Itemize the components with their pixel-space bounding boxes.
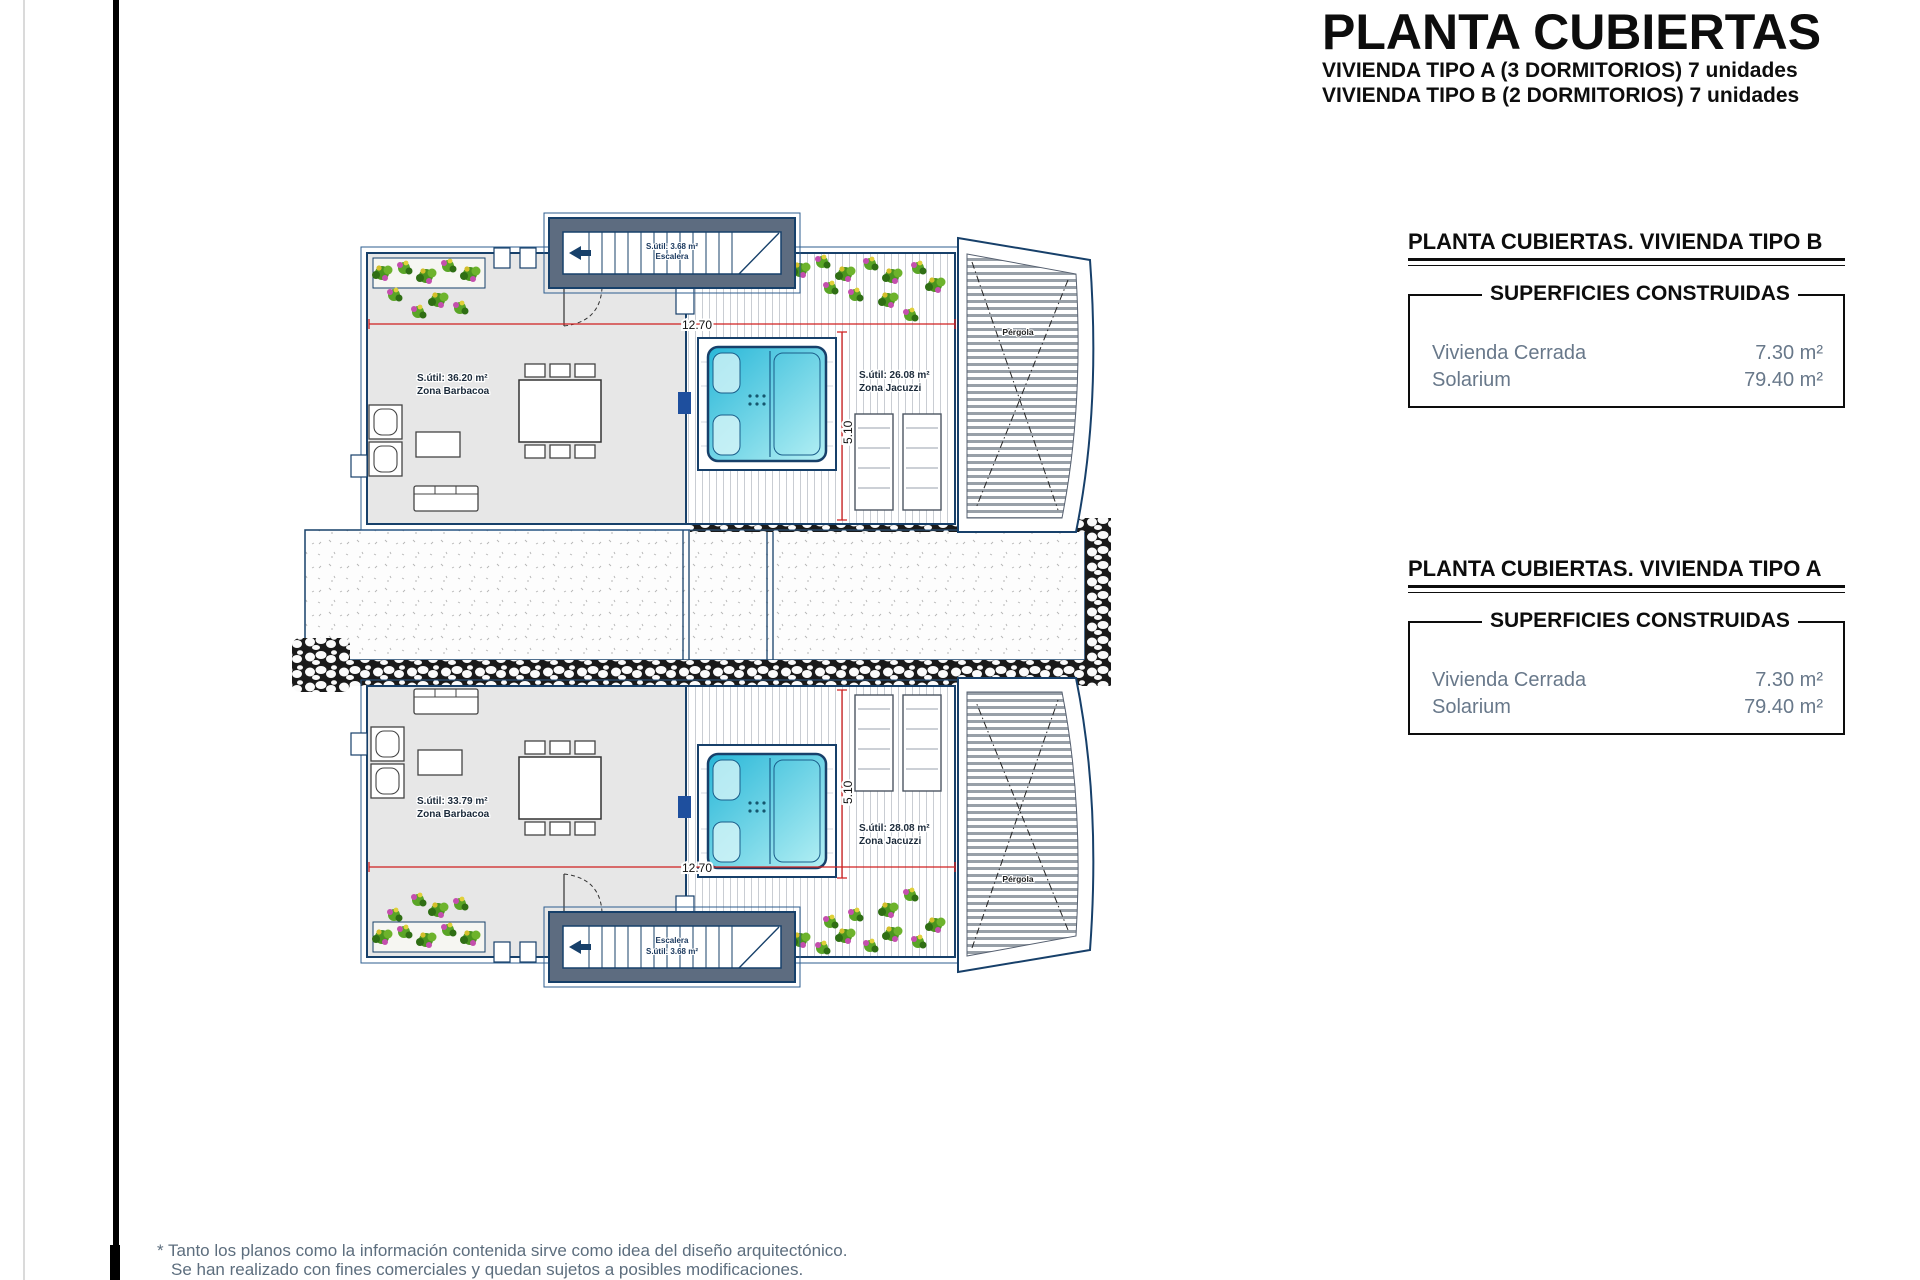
surfaces-box: SUPERFICIES CONSTRUIDAS Vivienda Cerrada… [1408,621,1845,735]
wall-niche [494,248,510,268]
surfaces-box-header: SUPERFICIES CONSTRUIDAS [1482,282,1798,306]
footnote-line-1: * Tanto los planos como la información c… [157,1241,847,1260]
zona-barbacoa-top-area: S.útil: 36.20 m² [417,373,488,384]
row-label: Solarium [1432,694,1511,721]
divider-unit [678,796,691,818]
jacuzzi-top [698,338,836,470]
row-value: 7.30 m² [1755,667,1823,694]
coffee-table [416,432,460,457]
pergola-label: Pérgola [1002,874,1033,884]
title-underline [1408,585,1845,593]
dim-width-top: 12.70 [682,318,712,332]
sheet-margin-line [23,0,25,1280]
dim-width-bottom: 12.70 [682,861,712,875]
zona-barbacoa-bottom-name: Zona Barbacoa [417,809,490,820]
table-title: PLANTA CUBIERTAS. VIVIENDA TIPO A [1408,556,1845,582]
zona-jacuzzi-top-name: Zona Jacuzzi [859,383,921,394]
subtitle-tipo-a: VIVIENDA TIPO A (3 DORMITORIOS) 7 unidad… [1322,58,1862,83]
title-block: PLANTA CUBIERTAS VIVIENDA TIPO A (3 DORM… [1322,6,1862,108]
table-row: Solarium 79.40 m² [1432,367,1823,394]
coffee-table [418,750,462,775]
zona-barbacoa-top-name: Zona Barbacoa [417,386,490,397]
table-row: Solarium 79.40 m² [1432,694,1823,721]
stair-top: S.útil: 3.68 m² Escalera [544,213,800,293]
wall-niche [520,248,536,268]
armchair [369,442,402,476]
stair-bottom: Escalera S.útil: 3.68 m² [544,907,800,987]
table-row: Vivienda Cerrada 7.30 m² [1432,667,1823,694]
zona-barbacoa-bottom-area: S.útil: 33.79 m² [417,796,488,807]
wall-niche [520,942,536,962]
drawing-sheet: PLANTA CUBIERTAS VIVIENDA TIPO A (3 DORM… [0,0,1920,1280]
stone-cluster-left [292,638,350,692]
stair-bottom-name: Escalera [656,936,689,945]
dim-height-bottom: 5.10 [841,780,855,804]
surfaces-table-tipo-b: PLANTA CUBIERTAS. VIVIENDA TIPO B SUPERF… [1408,229,1845,408]
jacuzzi-bottom [698,745,836,877]
subtitle-tipo-b: VIVIENDA TIPO B (2 DORMITORIOS) 7 unidad… [1322,83,1862,108]
armchair [371,727,404,761]
zona-jacuzzi-bottom-area: S.útil: 28.08 m² [859,823,930,834]
page-title: PLANTA CUBIERTAS [1322,6,1862,58]
row-value: 79.40 m² [1744,367,1823,394]
surfaces-box-header: SUPERFICIES CONSTRUIDAS [1482,609,1798,633]
title-underline [1408,258,1845,266]
surfaces-box: SUPERFICIES CONSTRUIDAS Vivienda Cerrada… [1408,294,1845,408]
stone-column-right [1085,518,1111,686]
divider-cabinet [676,288,694,314]
stair-top-area: S.útil: 3.68 m² [646,242,698,251]
pergola-top: Pérgola [958,238,1093,532]
armchair [371,764,404,798]
wall-niche [494,942,510,962]
row-value: 7.30 m² [1755,340,1823,367]
armchair [369,405,402,439]
sofa [414,689,478,714]
sheet-frame-bar [113,0,119,1280]
sheet-frame-bar-foot [110,1245,120,1280]
pergola-bottom: Pérgola [958,678,1093,972]
row-label: Vivienda Cerrada [1432,667,1586,694]
dim-height-top: 5.10 [841,420,855,444]
row-label: Solarium [1432,367,1511,394]
wall-notch [351,455,367,477]
central-roof-strip [292,518,1111,692]
sun-lounger [903,695,941,791]
pergola-label: Pérgola [1002,327,1033,337]
wall-notch [351,733,367,755]
sun-lounger [903,414,941,510]
footnote: * Tanto los planos como la información c… [157,1241,847,1279]
row-label: Vivienda Cerrada [1432,340,1586,367]
zona-jacuzzi-bottom-name: Zona Jacuzzi [859,836,921,847]
surfaces-table-tipo-a: PLANTA CUBIERTAS. VIVIENDA TIPO A SUPERF… [1408,556,1845,735]
footnote-line-2: Se han realizado con fines comerciales y… [157,1260,847,1279]
table-title: PLANTA CUBIERTAS. VIVIENDA TIPO B [1408,229,1845,255]
stair-top-name: Escalera [656,252,689,261]
divider-unit [678,392,691,414]
zona-jacuzzi-top-area: S.útil: 26.08 m² [859,370,930,381]
sun-lounger [855,414,893,510]
table-row: Vivienda Cerrada 7.30 m² [1432,340,1823,367]
stair-bottom-area: S.útil: 3.68 m² [646,947,698,956]
sun-lounger [855,695,893,791]
sofa [414,486,478,511]
row-value: 79.40 m² [1744,694,1823,721]
floor-plan: Pérgola 12.70 5.10 S.útil: 36.20 m² Zona… [270,200,1130,1000]
